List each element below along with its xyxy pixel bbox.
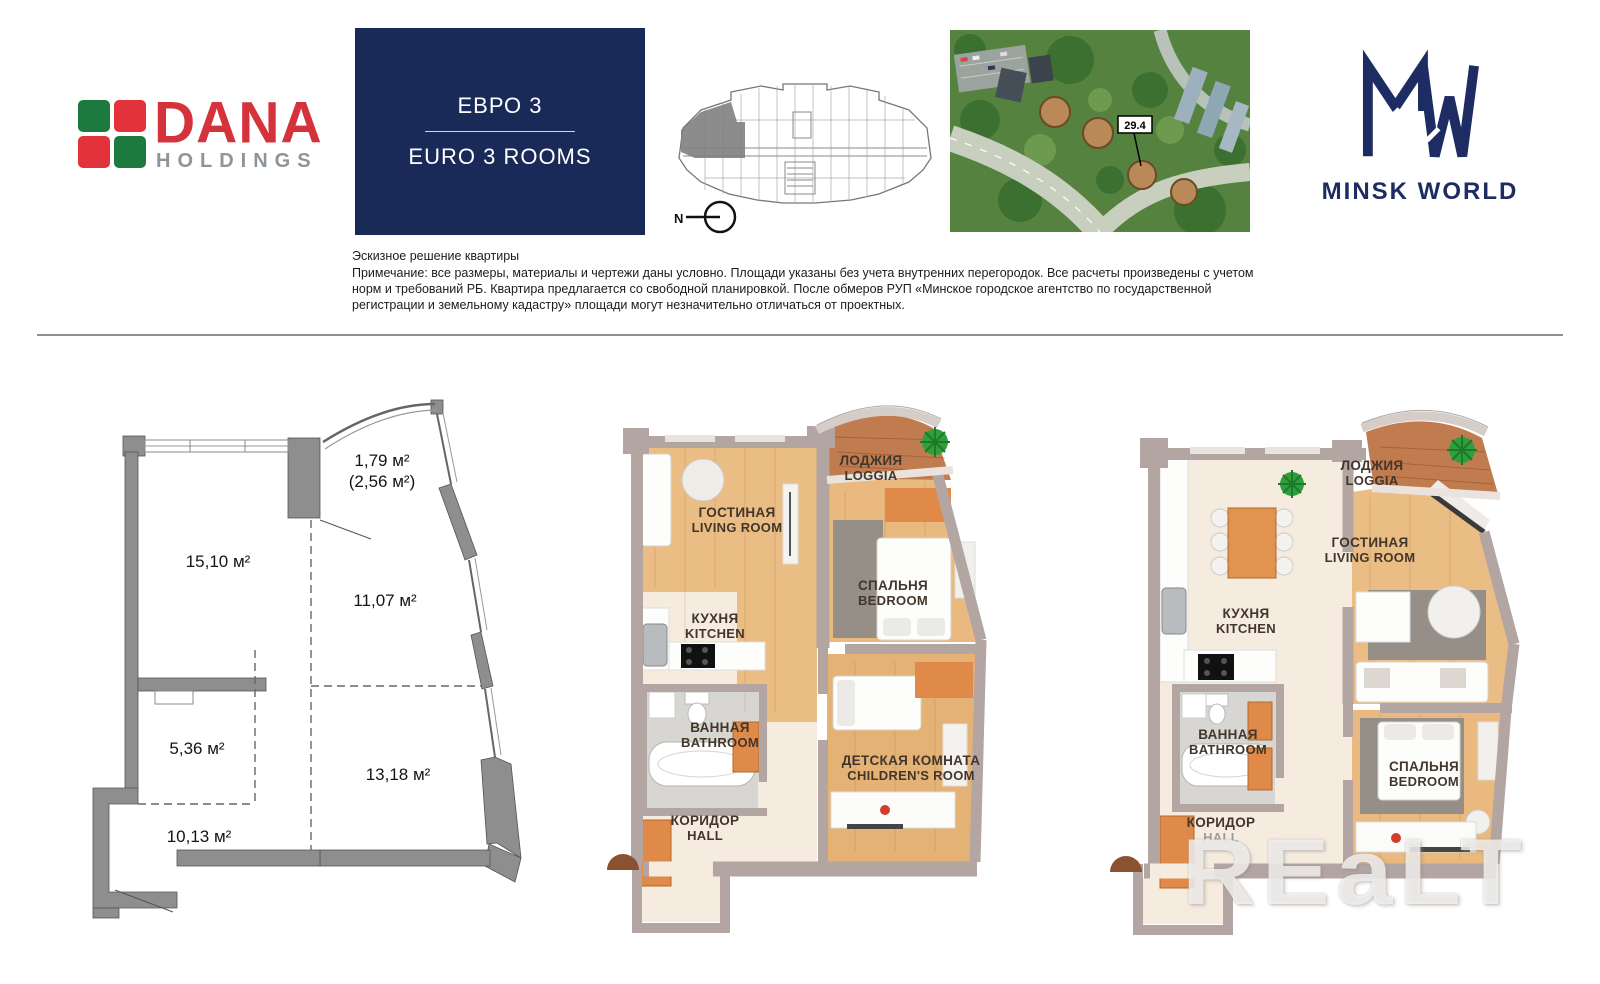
area-label: 11,07 м² [353,591,416,611]
site-aerial-map: 29.4 [950,30,1250,232]
dana-holdings-logo: DANA HOLDINGS [78,98,340,172]
area-label: 13,18 м² [366,765,431,785]
north-label: N [674,211,683,226]
dresser [831,792,955,828]
floor-plan-3d-a-drawing [585,392,1015,937]
area-label: 1,79 м² [354,451,409,471]
dana-brand-name: DANA [154,89,323,156]
room-label: ДЕТСКАЯ КОМНАТАCHILDREN'S ROOM [842,753,981,783]
apartment-type-en: EURO 3 ROOMS [408,144,591,170]
dana-brand-subtitle: HOLDINGS [156,150,318,173]
dana-squares-icon [78,100,146,168]
round-table [1428,586,1480,638]
room-label: ВАННАЯBATHROOM [681,720,759,750]
room-label: ЛОДЖИЯLOGGIA [840,453,903,483]
flyer-page: DANA HOLDINGS ЕВРО 3 EURO 3 ROOMS [0,0,1600,984]
area-label: (2,56 м²) [349,472,415,492]
floor-plan-2d: 1,79 м² (2,56 м²) 15,10 м² 11,07 м² 5,36… [85,392,525,937]
room-label: КУХНЯKITCHEN [1216,606,1276,636]
room-label: КОРИДОРHALL [671,813,740,843]
kitchen-sink [1162,588,1186,634]
disclaimer-title: Эскизное решение квартиры [352,248,1267,264]
round-table [682,459,724,501]
dining-table [1228,508,1276,578]
room-label: ЛОДЖИЯLOGGIA [1341,458,1404,488]
area-label: 15,10 м² [186,552,251,572]
disclaimer-body: Примечание: все размеры, материалы и чер… [352,265,1267,313]
apartment-type-ru: ЕВРО 3 [458,93,543,119]
compass-icon: N [670,196,750,238]
kitchen-counter [1160,456,1188,682]
minsk-world-logo: MINSK WORLD [1318,50,1522,215]
room-label: ГОСТИНАЯLIVING ROOM [1325,535,1416,565]
building-number-label: 29.4 [1124,120,1146,132]
sofa [641,454,671,546]
floor-plan-2d-drawing [85,392,525,937]
entry-door [1110,856,1142,872]
cooktop [681,644,715,668]
room-label: КУХНЯKITCHEN [685,611,745,641]
room-label: ВАННАЯBATHROOM [1189,727,1267,757]
room-label: ГОСТИНАЯLIVING ROOM [692,505,783,535]
realt-watermark: REaLT [1182,818,1528,926]
type-box-divider [425,131,575,132]
kitchen-sink [643,624,667,666]
area-label: 10,13 м² [167,827,232,847]
floor-plan-3d-a: ЛОДЖИЯLOGGIA ГОСТИНАЯLIVING ROOM КУХНЯKI… [585,392,1015,937]
room-label: СПАЛЬНЯBEDROOM [1389,759,1459,789]
apartment-type-box: ЕВРО 3 EURO 3 ROOMS [355,28,645,235]
minsk-world-wordmark: MINSK WORLD [1318,178,1522,206]
area-label: 5,36 м² [169,739,224,759]
cooktop [1198,654,1234,680]
section-divider [37,334,1563,336]
disclaimer: Эскизное решение квартиры Примечание: вс… [352,248,1267,314]
room-label: СПАЛЬНЯBEDROOM [858,578,928,608]
toilet [685,692,709,704]
minsk-world-monogram-icon [1356,50,1484,168]
